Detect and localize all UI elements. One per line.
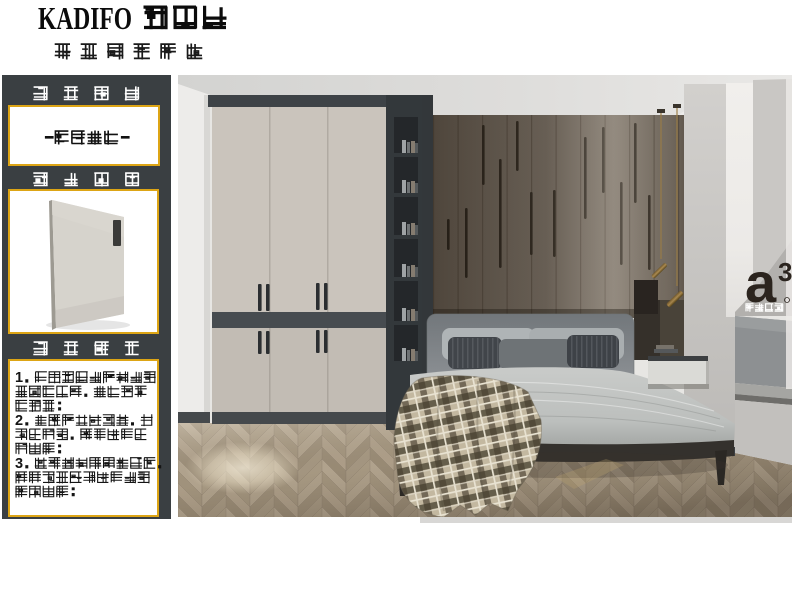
svg-text:3: 3	[778, 257, 792, 287]
svg-text:KADIFO: KADIFO	[38, 0, 132, 36]
svg-text:1: 1	[15, 370, 23, 386]
svg-text:2: 2	[15, 413, 23, 429]
svg-text:3: 3	[15, 456, 23, 472]
